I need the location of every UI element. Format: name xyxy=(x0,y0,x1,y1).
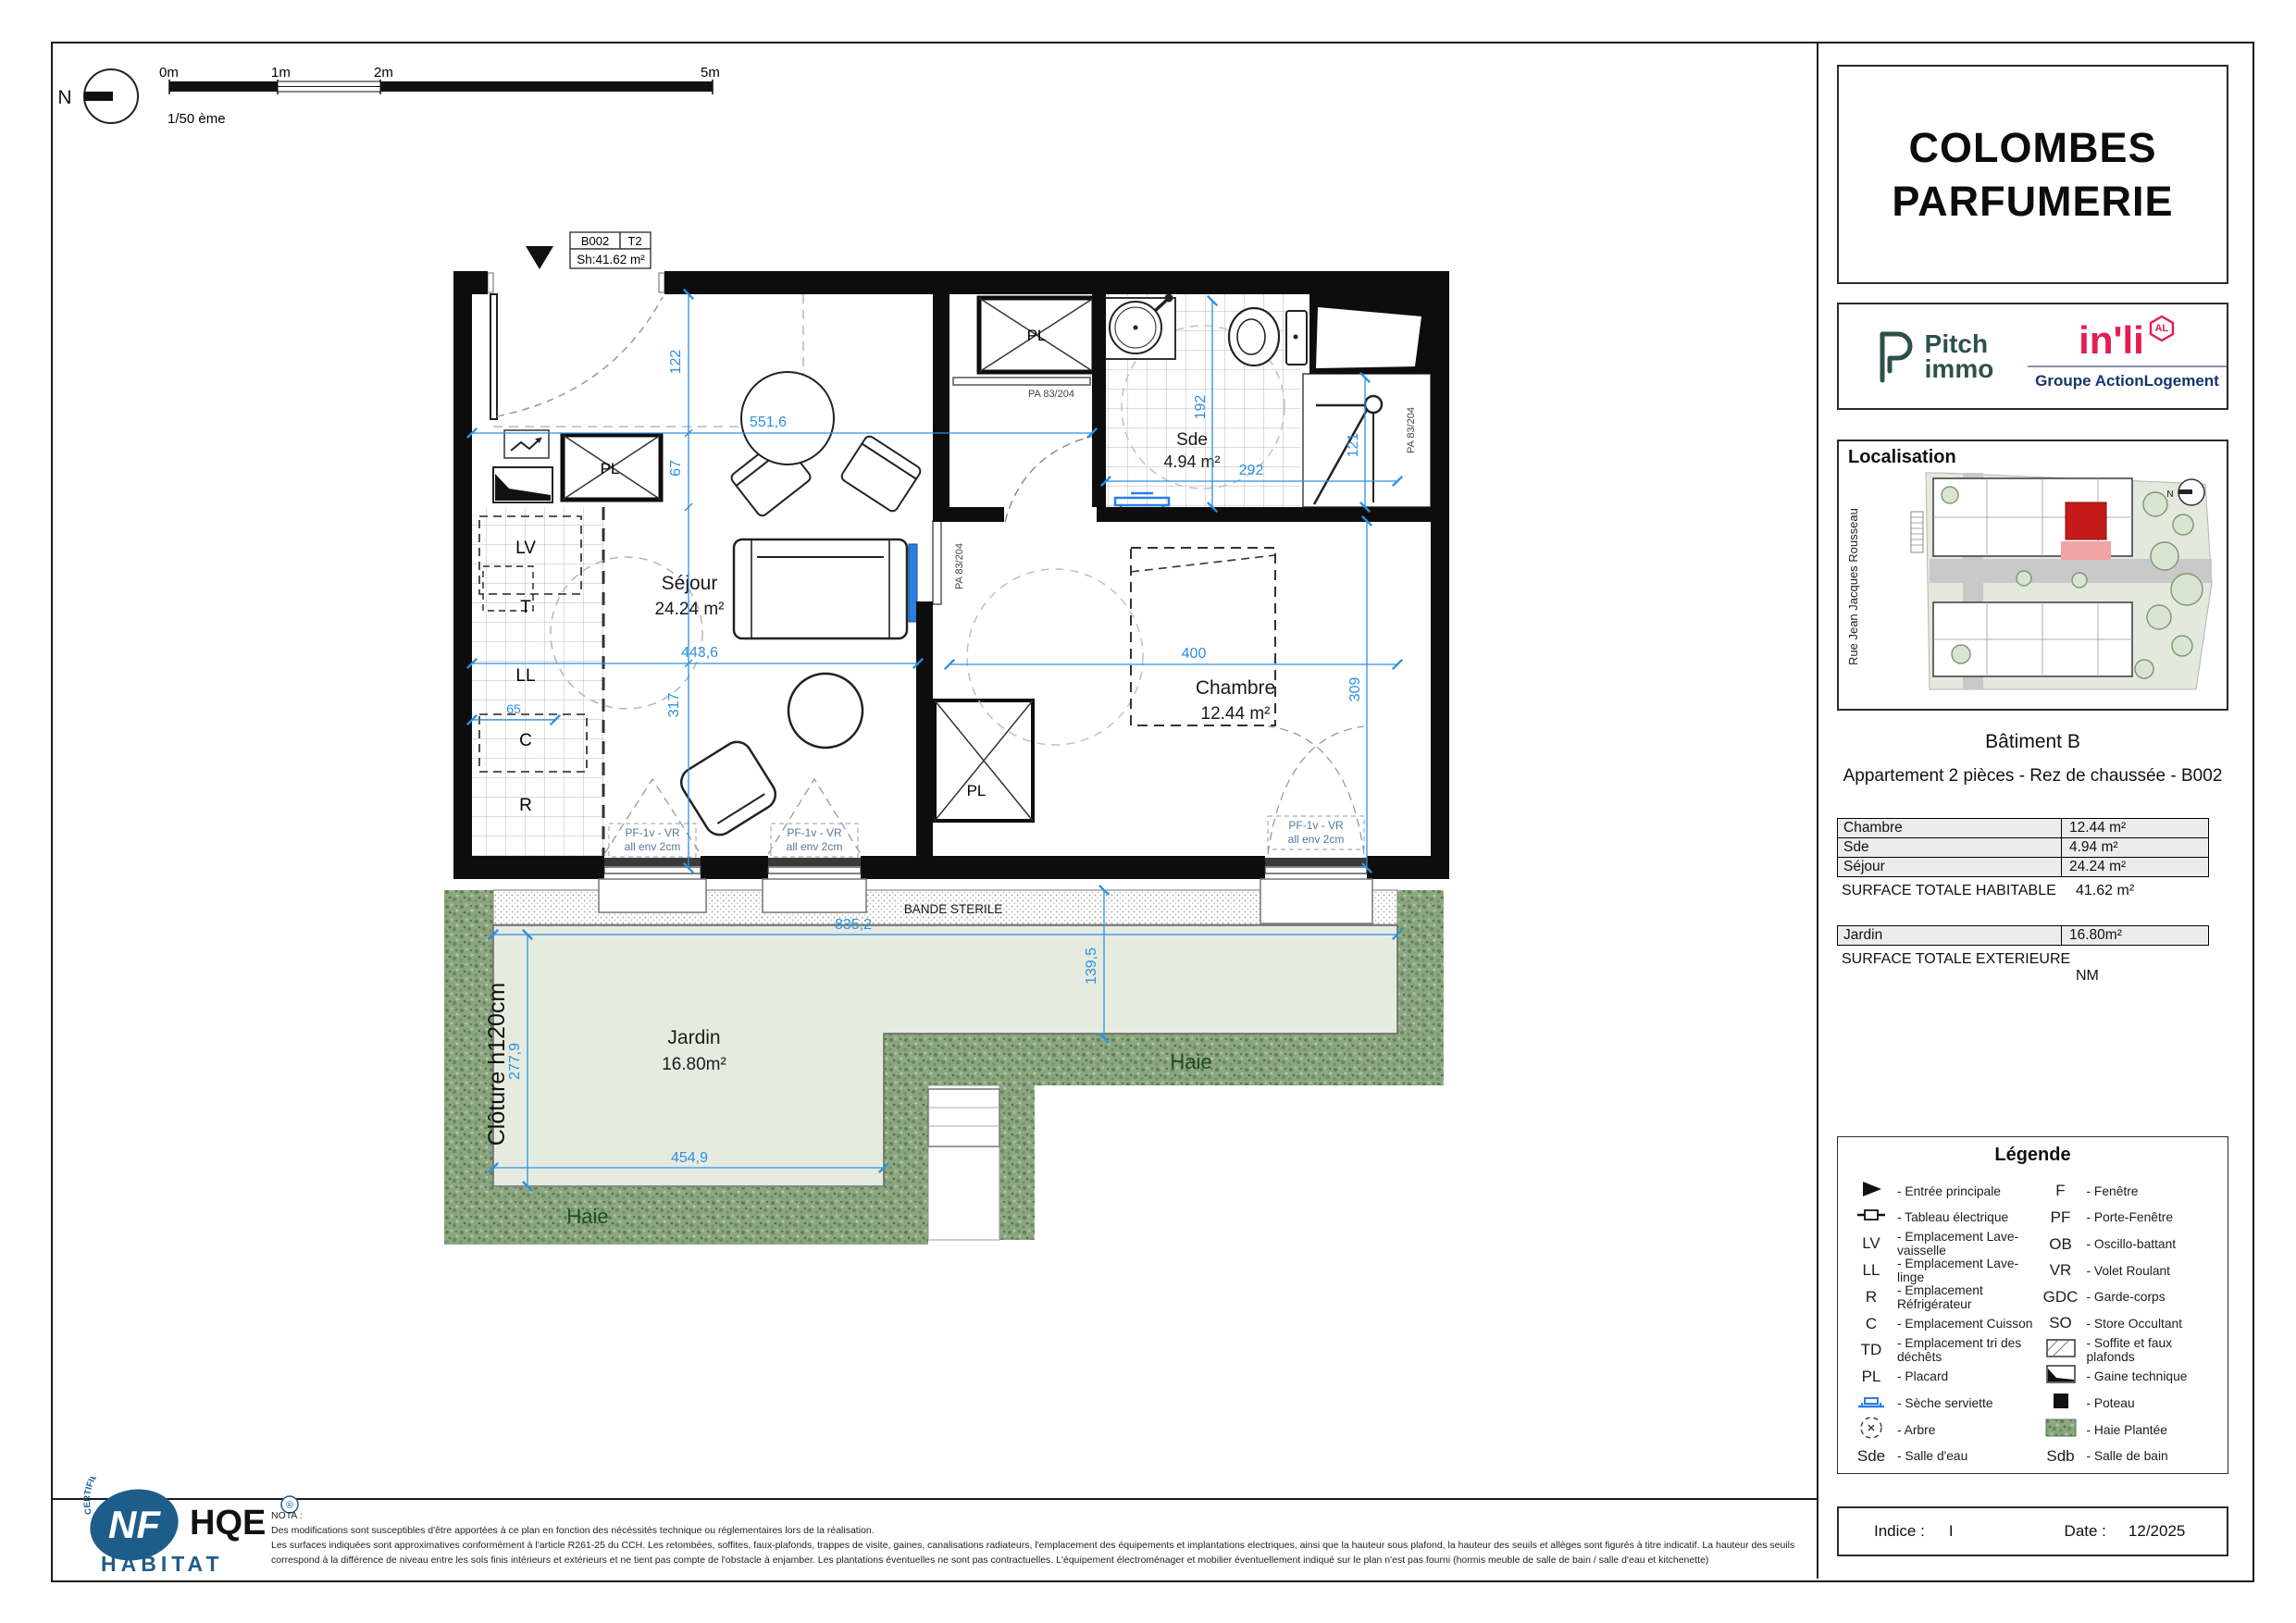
nota-block: NOTA : Des modifications sont susceptibl… xyxy=(271,1508,1812,1567)
nota-line: Des modifications sont susceptibles d'êt… xyxy=(271,1523,1812,1538)
nf-label: NF xyxy=(108,1503,161,1546)
nota-line: correspond à la différence de niveau ent… xyxy=(271,1553,1812,1567)
nota-line: Les surfaces indiquées sont approximativ… xyxy=(271,1538,1812,1553)
nota-title: NOTA : xyxy=(271,1508,1812,1523)
plan-sheet: BANDE STERILE Jardin 16.80m² Haie Haie C… xyxy=(0,0,2296,1623)
habitat-label: HABITAT xyxy=(101,1552,224,1576)
hqe-label: HQE xyxy=(190,1504,266,1542)
sheet-frame xyxy=(51,42,2254,1582)
panel-divider xyxy=(1817,42,1818,1579)
